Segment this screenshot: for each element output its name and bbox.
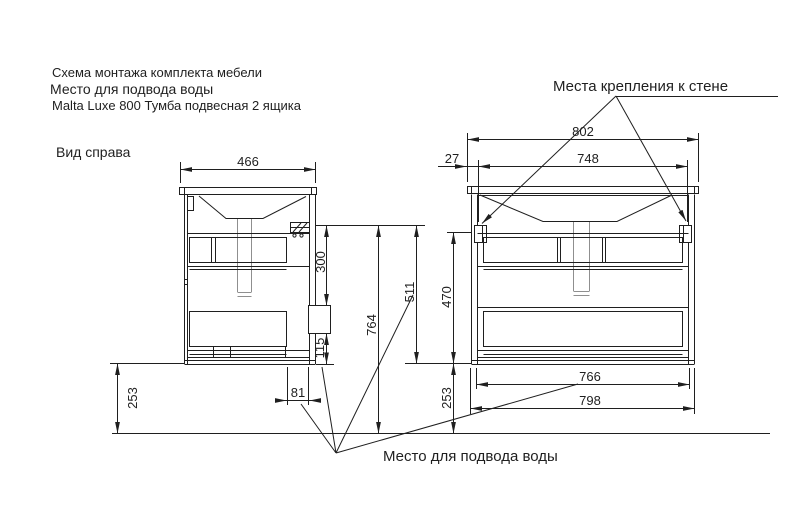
side-view-drawing (180, 188, 331, 365)
dim-798: 798 (579, 393, 601, 408)
dim-115: 115 (312, 338, 327, 359)
dim-764: 764 (364, 314, 379, 336)
dim-766: 766 (579, 369, 601, 384)
side-drain-pipe (238, 219, 252, 297)
dim-253-right: 253 (439, 387, 454, 409)
side-bottom (185, 358, 316, 365)
dim-511: 511 (402, 282, 417, 303)
front-walls (472, 195, 695, 365)
mounting-scheme-drawing: Схема монтажа комплекта мебели Место для… (0, 0, 800, 512)
title-line-1: Схема монтажа комплекта мебели (52, 65, 262, 80)
side-basin (199, 196, 306, 219)
side-countertop (180, 188, 317, 195)
front-bottom (472, 358, 695, 365)
mounting-scheme-page: Схема монтажа комплекта мебели Место для… (0, 0, 800, 512)
dim-253-left: 253 (125, 387, 140, 409)
dim-466: 466 (237, 154, 259, 169)
dim-27: 27 (445, 151, 459, 166)
dim-748: 748 (577, 151, 599, 166)
title-line-3: Malta Luxe 800 Тумба подвесная 2 ящика (52, 98, 302, 113)
front-upper-drawer (484, 238, 683, 263)
title-line-2: Место для подвода воды (50, 81, 213, 97)
side-wall-bracket (291, 223, 310, 238)
front-countertop (468, 187, 699, 194)
front-view-drawing (468, 187, 699, 365)
dim-81: 81 (291, 385, 305, 400)
side-view-label: Вид справа (56, 144, 131, 160)
water-supply-label: Место для подвода воды (383, 448, 558, 465)
side-lower-drawer (190, 312, 287, 347)
front-basin (478, 195, 689, 222)
side-water-supply-box (309, 306, 331, 334)
dim-470: 470 (439, 286, 454, 308)
dim-300: 300 (313, 251, 328, 273)
dim-802: 802 (572, 124, 594, 139)
wall-mount-leader (482, 96, 778, 224)
wall-mounts-label: Места крепления к стене (553, 78, 728, 95)
water-supply-leader (301, 295, 578, 453)
front-lower-drawer (484, 312, 683, 347)
